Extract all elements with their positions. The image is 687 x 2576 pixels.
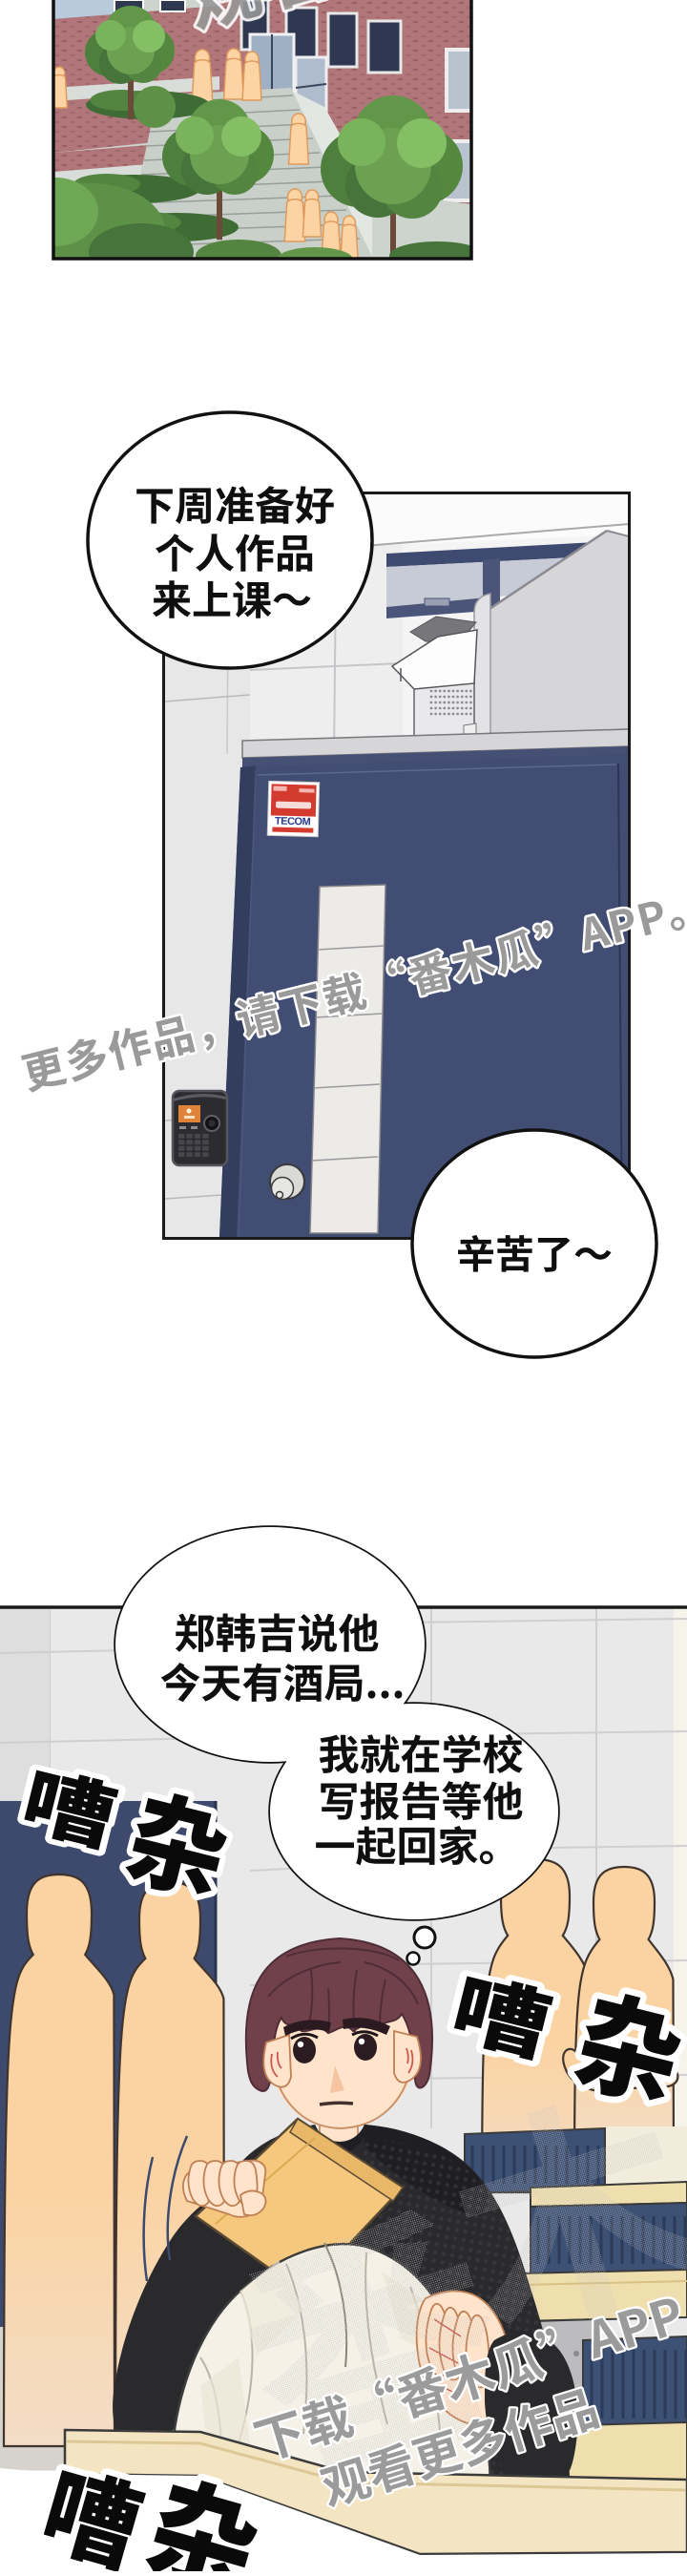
svg-text:TECOM: TECOM [275, 816, 311, 828]
